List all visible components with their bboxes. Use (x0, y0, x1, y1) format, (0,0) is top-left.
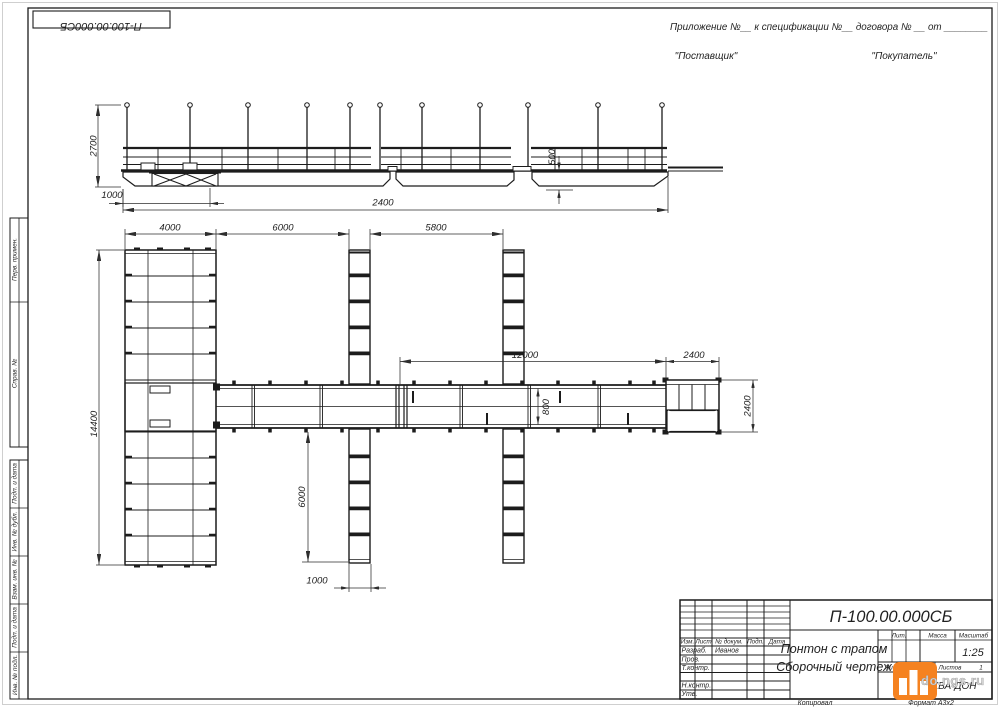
row-razrab-value: Иванов (715, 648, 739, 655)
left-margin-strip: Перв. примен. Справ. № Подп. и дата Инв.… (10, 218, 28, 699)
dim-1000f-label: 1000 (306, 576, 328, 587)
hull-segment-3 (532, 172, 668, 186)
hull-connector-1 (388, 167, 397, 172)
dim-2400r-label: 2400 (743, 395, 754, 418)
scale-value: 1:25 (962, 647, 984, 659)
sheets-value: 1 (979, 665, 983, 672)
row-tkontr-label: Т.контр. (682, 665, 710, 672)
strip-label-inv-dubl: Инв. № дубл. (11, 511, 19, 551)
strip-label-podp-data-2: Подп. и дата (11, 607, 19, 648)
dim-5800-label: 5800 (425, 223, 447, 234)
strip-label-perv-primen: Перв. примен. (12, 238, 19, 281)
dim-2700-label: 2700 (89, 135, 100, 158)
hull-connector-2 (513, 167, 531, 172)
doc-number: П-100.00.000СБ (830, 608, 953, 626)
row-utv-label: Утв. (681, 691, 698, 698)
finger-pier-upper-2 (503, 250, 524, 384)
dim-14400-label: 14400 (89, 410, 100, 437)
dim-6000f-label: 6000 (297, 486, 308, 508)
dim-12000-label: 12000 (512, 350, 539, 361)
dim-14400-ext (96, 250, 124, 565)
walkway-lugs-top (234, 381, 654, 385)
lit-label: Лит. (891, 633, 907, 640)
dim-2400p-label: 2400 (682, 350, 705, 361)
row-prov-label: Пров. (682, 657, 701, 664)
finger-pier-upper-1 (349, 250, 370, 384)
title-block: Изм. Лист № докум. Подп. Дата Разраб. Ив… (680, 600, 992, 707)
supplier-label: "Поставщик" (675, 51, 738, 62)
dim-4000-label: 4000 (159, 223, 181, 234)
dim-1000-label: 1000 (101, 190, 123, 201)
row-nkontr-label: Н.контр. (682, 683, 712, 690)
mass-label: Масса (928, 633, 947, 640)
col-list: Лист (694, 639, 711, 646)
ramp-handle-2 (150, 420, 170, 427)
doc-title-line2: Сборочный чертеж (776, 660, 893, 674)
appendix-line: Приложение №__ к спецификации №__ догово… (670, 21, 988, 33)
revision-rows (680, 606, 790, 630)
buyer-label: "Покупатель" (871, 51, 937, 62)
col-dokum: № докум. (715, 638, 743, 646)
railing-balusters (158, 148, 645, 170)
walkway-inner-lines (216, 389, 666, 425)
contract-header: Приложение №__ к спецификации №__ догово… (670, 21, 988, 62)
hull-segment-2 (396, 172, 514, 186)
format-label: Формат А3х2 (908, 700, 954, 707)
dim-12000-ext (400, 357, 666, 384)
drawing-sheet: П-100.00.000СБ Приложение №__ к специфик… (0, 0, 1000, 707)
col-podp: Подп. (747, 638, 764, 646)
walkway-lugs-bottom (234, 429, 654, 433)
end-platform (663, 378, 722, 435)
strip-label-inv-podl: Инв. № подл. (11, 655, 19, 696)
drawing-canvas: П-100.00.000СБ Приложение №__ к специфик… (0, 0, 1000, 707)
strip-label-vzam-inv: Взам. инв. № (12, 559, 19, 599)
doc-title-line1: Понтон с трапом (781, 642, 888, 656)
elevation-view: 2700 1000 500 2400 (89, 103, 724, 213)
finger-pier-lower-1 (349, 429, 370, 563)
row-razrab-label: Разраб. (682, 647, 707, 655)
sheets-label: Листов (938, 665, 963, 672)
dim-500-label: 500 (547, 148, 558, 165)
scale-label: Масштаб (959, 632, 989, 640)
dim-800-label: 800 (541, 398, 552, 415)
col-izm: Изм. (681, 639, 694, 646)
copied-label: Копировал (798, 700, 833, 707)
dim-1000-ext (123, 188, 210, 207)
plan-view: 4000 6000 5800 14400 12000 2400 800 2400… (89, 223, 758, 593)
walkway-fastener-marks (413, 391, 628, 425)
top-left-doc-number: П-100.00.000СБ (60, 20, 142, 32)
dim-6000-label: 6000 (272, 223, 294, 234)
ramp-handle-1 (150, 386, 170, 393)
strip-label-podp-data-1: Подп. и дата (11, 463, 19, 504)
strip-label-sprav-no: Справ. № (12, 359, 19, 389)
walkway (213, 381, 666, 433)
main-pontoon (125, 250, 216, 565)
scissor-box (152, 174, 218, 187)
watermark-text: do.ngs.ru (921, 673, 985, 688)
post-ball-tops (125, 103, 665, 108)
finger-pier-lower-2 (503, 429, 524, 563)
dim-2400e-label: 2400 (371, 198, 394, 209)
